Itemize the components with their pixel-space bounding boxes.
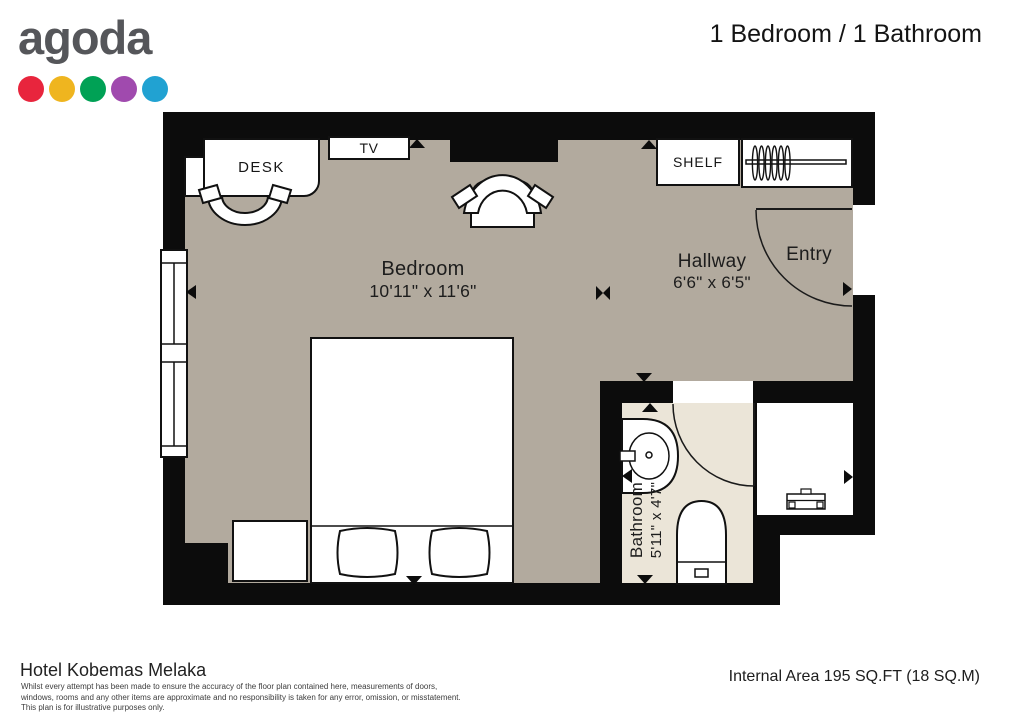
- disclaimer-line-3: This plan is for illustrative purposes o…: [21, 703, 481, 714]
- niche-divider: [753, 403, 757, 516]
- logo-dot-green: [80, 76, 106, 102]
- entry-name: Entry: [759, 243, 859, 266]
- wall-step: [753, 535, 780, 605]
- wall-bottom: [163, 583, 780, 605]
- disclaimer: Whilst every attempt has been made to en…: [21, 682, 481, 714]
- wall-right: [853, 112, 875, 535]
- floorplan-page: agoda 1 Bedroom / 1 Bathroom DESK TV SHE…: [0, 0, 1024, 723]
- closet: [741, 138, 853, 188]
- hotel-name: Hotel Kobemas Melaka: [20, 660, 206, 681]
- tv-label: TV: [360, 140, 379, 156]
- agoda-logo-dots: [18, 76, 173, 102]
- entry-label: Entry: [759, 243, 859, 266]
- bathroom-label: Bathroom 5'11" x 4'7": [627, 447, 673, 593]
- logo-dot-blue: [142, 76, 168, 102]
- bathroom-name: Bathroom: [627, 447, 648, 593]
- bedroom-label: Bedroom 10'11" x 11'6": [323, 257, 523, 303]
- wall-top: [163, 112, 875, 140]
- logo-dot-purple: [111, 76, 137, 102]
- wall-left: [163, 140, 185, 583]
- wall-hallway-bottom: [753, 381, 875, 403]
- agoda-logo: agoda: [18, 10, 151, 65]
- wall-top-column: [450, 140, 558, 162]
- shelf-label: SHELF: [673, 154, 723, 170]
- wall-bathroom-top: [600, 381, 673, 403]
- page-title: 1 Bedroom / 1 Bathroom: [710, 20, 982, 49]
- internal-area-text: Internal Area 195 SQ.FT (18 SQ.M): [729, 668, 980, 686]
- disclaimer-line-2: windows, rooms and any other items are a…: [21, 693, 481, 704]
- tv: TV: [328, 136, 410, 160]
- desk-label: DESK: [238, 159, 285, 176]
- bathroom-dims: 5'11" x 4'7": [648, 447, 666, 593]
- bedroom-name: Bedroom: [323, 257, 523, 281]
- bedroom-dims: 10'11" x 11'6": [323, 281, 523, 302]
- disclaimer-line-1: Whilst every attempt has been made to en…: [21, 682, 481, 693]
- wall-bathroom-left: [600, 381, 622, 605]
- floor-bedroom-lower: [185, 381, 600, 583]
- shelf: SHELF: [656, 138, 740, 186]
- logo-dot-yellow: [49, 76, 75, 102]
- desk: DESK: [203, 138, 320, 197]
- ac-unit: [787, 489, 825, 509]
- wall-niche-bottom: [753, 515, 875, 535]
- hallway-dims: 6'6" x 6'5": [632, 273, 792, 294]
- marker-niche: [844, 470, 853, 484]
- logo-dot-red: [18, 76, 44, 102]
